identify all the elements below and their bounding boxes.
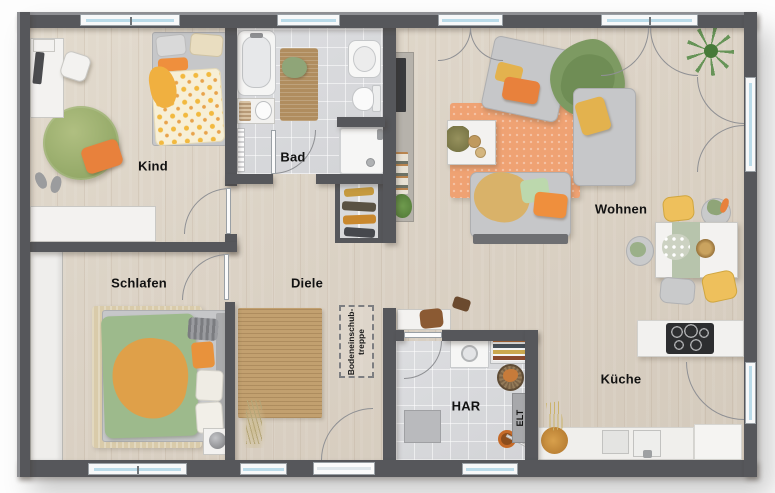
coffee-table-bowl-2: [475, 147, 486, 158]
room-label-schlafen: Schlafen: [111, 276, 167, 291]
window-bad: [277, 14, 340, 26]
floorplan-canvas: Bodeneinschub- treppe: [0, 0, 775, 493]
wall-shower-divider: [337, 117, 385, 127]
schlafen-door-leaf: [224, 254, 229, 300]
french-door-wohnen-right: [745, 77, 756, 172]
attic-stairs-label-line1: Bodeneinschub-: [347, 307, 357, 377]
french-door-wohnen-1: [438, 14, 503, 26]
wall-har-top-stub: [396, 330, 404, 341]
bath-sink-bowl: [353, 46, 376, 72]
wall-har-kueche: [525, 330, 538, 460]
room-label-kind: Kind: [138, 159, 168, 174]
diele-pampas-stems: [246, 400, 262, 444]
door-kueche-right: [745, 362, 756, 424]
kind-desk-printer: [33, 39, 55, 52]
bath-towel: [282, 57, 307, 78]
kitchen-tall-cabinet: [694, 424, 742, 460]
wardrobe: [30, 250, 63, 462]
window-glass: [243, 468, 284, 471]
window-diele: [240, 463, 287, 475]
dining-chair-yellow-top: [662, 194, 695, 222]
shower-drain: [366, 158, 375, 167]
bad-door-leaf: [271, 130, 276, 174]
kind-sideboard: [30, 206, 156, 242]
room-label-kueche: Küche: [601, 372, 642, 387]
shoes-row-3: [343, 214, 376, 224]
wall-bad-wohnen: [383, 28, 396, 243]
attic-stairs-label-line2: treppe: [357, 307, 367, 377]
wall-har-top: [442, 330, 537, 341]
room-label-diele: Diele: [291, 276, 323, 291]
door-glass: [749, 366, 752, 420]
washing-machine-door: [461, 345, 478, 362]
kind-bed-pillow-1: [155, 33, 187, 57]
window-mullion: [130, 17, 132, 25]
window-mullion: [137, 466, 139, 474]
schlafen-pillow-striped: [187, 317, 218, 341]
bath-radiator: [237, 128, 245, 172]
outer-wall-left: [17, 12, 30, 477]
bench-bag: [419, 308, 444, 329]
room-label-har: HAR: [452, 399, 481, 414]
label-elt: ELT: [515, 410, 525, 427]
room-label-bad: Bad: [280, 150, 305, 165]
door-glass: [749, 83, 752, 167]
bath-vanity-basin: [255, 101, 272, 120]
bathtub-faucet: [250, 33, 263, 38]
window-glass: [281, 19, 336, 22]
tv-shelf-books: [395, 152, 408, 194]
cooktop: [666, 323, 714, 354]
kitchen-faucet: [643, 450, 652, 458]
door-glass: [317, 467, 371, 470]
schlafen-pillow-white-1: [195, 369, 224, 401]
wall-kind-bottom: [30, 242, 237, 252]
palm-plant-core: [704, 44, 718, 58]
window-mullion: [649, 17, 651, 25]
room-label-wohnen: Wohnen: [595, 202, 647, 217]
window-schlafen: [88, 463, 187, 475]
window-kind: [80, 14, 180, 26]
kind-door-leaf: [226, 188, 231, 234]
tv-screen: [395, 58, 406, 112]
entrance-door: [313, 462, 375, 475]
har-door-leaf: [404, 332, 442, 338]
schlafen-lamp: [209, 432, 226, 449]
wall-bad-bottom-left: [225, 174, 273, 184]
window-glass: [466, 468, 515, 471]
bathtub-basin: [242, 36, 271, 88]
wall-schlafen-diele: [225, 302, 235, 460]
window-har: [462, 463, 518, 475]
dining-table-bowl: [696, 239, 715, 258]
french-door-wohnen-2: [601, 14, 698, 26]
kind-bed-pillow-2: [189, 33, 224, 58]
boiler: [404, 410, 441, 443]
shoes-row-2: [342, 201, 376, 212]
attic-stairs-marker: Bodeneinschub- treppe: [339, 305, 374, 378]
door-glass: [442, 19, 499, 22]
bath-vanity-tray: [239, 101, 251, 121]
coffee-table-plant: [447, 126, 469, 154]
wall-kind-bad: [225, 28, 237, 186]
wall-har-left: [383, 308, 396, 460]
wall-bad-bottom-right: [316, 174, 385, 184]
kitchen-dried-plant: [541, 427, 568, 454]
schlafen-pillow-orange: [191, 341, 215, 369]
kitchen-sink-1: [602, 430, 629, 454]
sofa-bottom-pillow-orange: [533, 191, 568, 218]
sofa-bottom-base: [473, 234, 568, 244]
toilet-bowl: [352, 87, 374, 111]
dining-chair-gray-bottom: [659, 277, 696, 306]
